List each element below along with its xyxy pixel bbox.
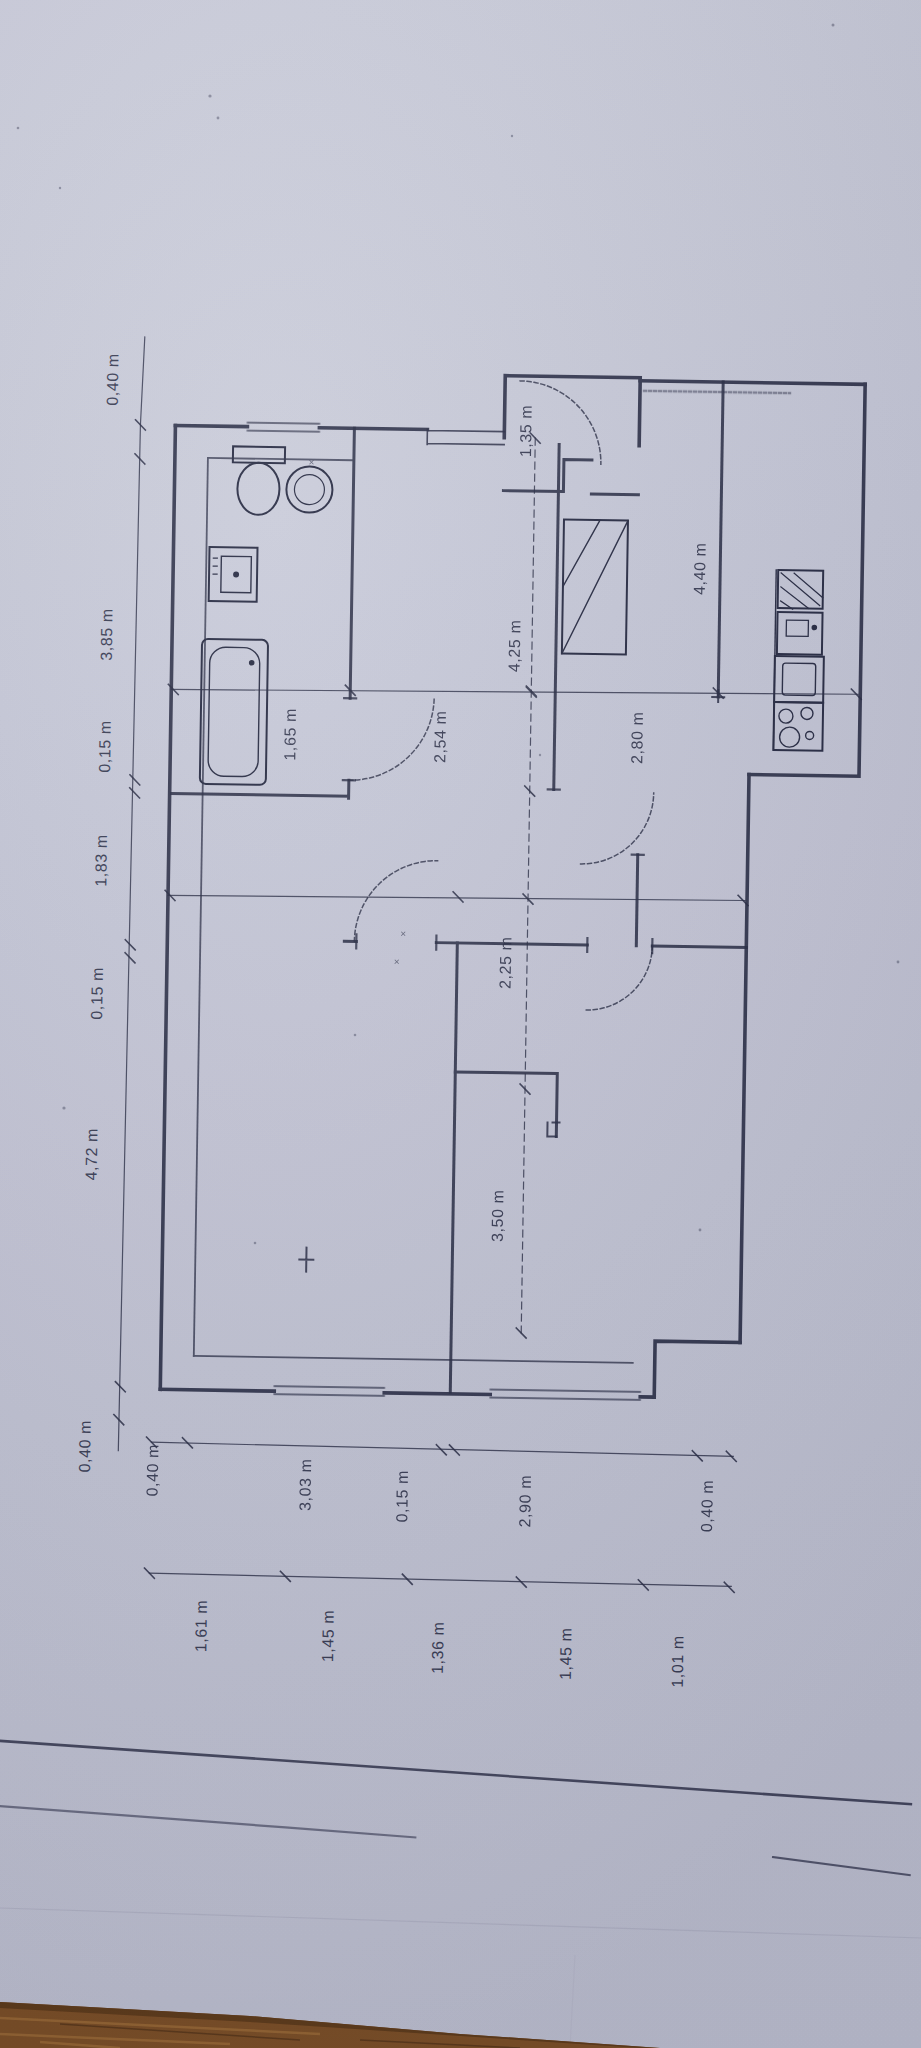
living-door-arc xyxy=(586,945,652,1011)
door-cross-mark: × xyxy=(400,928,407,939)
dim-label: 0,40 m xyxy=(104,353,122,406)
interior-walls xyxy=(162,374,755,1397)
left-dimension-labels: 0,40 m 3,85 m 0,15 m 1,83 m 0,15 m 4,72 … xyxy=(76,353,122,1473)
bathroom-door-arc xyxy=(349,696,434,781)
wood-table-surface xyxy=(0,2002,660,2048)
dim-label-hall: 2,25 m xyxy=(497,936,515,989)
dim-label-bathroom: 1,65 m xyxy=(281,708,299,761)
dim-label: 3,03 m xyxy=(296,1458,314,1511)
dim-label: 1,36 m xyxy=(429,1621,447,1674)
photographed-floor-plan: 0,40 m 3,85 m 0,15 m 1,83 m 0,15 m 4,72 … xyxy=(0,0,921,2048)
dim-label: 4,72 m xyxy=(83,1128,101,1181)
wall-inner-faces xyxy=(194,458,647,1363)
paper-specks xyxy=(17,24,900,1245)
dim-label-kitchen: 4,40 m xyxy=(691,542,709,595)
paper-crease xyxy=(570,1955,575,2048)
interior-dimension-labels: 1,35 m 1,65 m 2,54 m 4,25 m 2,80 m 4,40 … xyxy=(274,401,711,1245)
dim-label: 0,40 m xyxy=(76,1420,94,1473)
cutoff-drawing-lines xyxy=(0,1740,912,1876)
door-arcs xyxy=(345,378,661,1011)
window-symbols xyxy=(232,385,790,1402)
dim-label: 3,85 m xyxy=(98,608,116,661)
washing-machine-fixture xyxy=(209,547,258,602)
dimension-ticks xyxy=(111,420,865,1594)
dim-label: 0,15 m xyxy=(393,1470,411,1523)
dim-label: 1,61 m xyxy=(192,1600,210,1653)
dim-label: 0,15 m xyxy=(96,720,114,773)
bedroom1-door-arc xyxy=(354,859,437,942)
dim-label: 1,83 m xyxy=(92,834,110,887)
dimension-lines xyxy=(116,337,863,1588)
dim-label: 2,90 m xyxy=(516,1475,534,1528)
corridor-wall xyxy=(427,429,504,445)
door-cross-mark: × xyxy=(394,956,401,967)
bottom-inner-dimension-labels: 1,61 m 1,45 m 1,36 m 1,45 m 1,01 m xyxy=(192,1600,687,1688)
wardrobe-fixture xyxy=(562,520,628,655)
bottom-outer-dimension-labels: 0,40 m 3,03 m 0,15 m 2,90 m 0,40 m xyxy=(143,1444,716,1532)
dim-label-middle-room: 2,54 m xyxy=(431,710,449,763)
dim-label-middle-room-length: 4,25 m xyxy=(506,619,524,672)
dim-label: 0,40 m xyxy=(698,1480,716,1533)
dim-label-living: 2,80 m xyxy=(628,711,646,764)
dim-label: 1,45 m xyxy=(319,1610,337,1663)
sink-fixture xyxy=(286,466,333,513)
toilet-fixture xyxy=(232,446,285,515)
dim-label: 1,01 m xyxy=(669,1635,687,1688)
bathtub-fixture xyxy=(200,639,268,785)
floor-plan-drawing: 0,40 m 3,85 m 0,15 m 1,83 m 0,15 m 4,72 … xyxy=(0,0,921,2048)
dim-label-bedroom: 3,50 m xyxy=(489,1189,507,1242)
paper-crease xyxy=(0,1908,921,1938)
door-cross-mark: × xyxy=(309,457,316,468)
kitchen-units xyxy=(773,570,825,751)
dim-label: 0,15 m xyxy=(88,967,106,1020)
door-jambs xyxy=(340,698,656,953)
dim-label: 1,45 m xyxy=(557,1627,575,1680)
dim-label: 0,40 m xyxy=(144,1444,162,1497)
outer-walls xyxy=(160,370,865,1400)
dim-label-entry: 1,35 m xyxy=(517,405,535,458)
